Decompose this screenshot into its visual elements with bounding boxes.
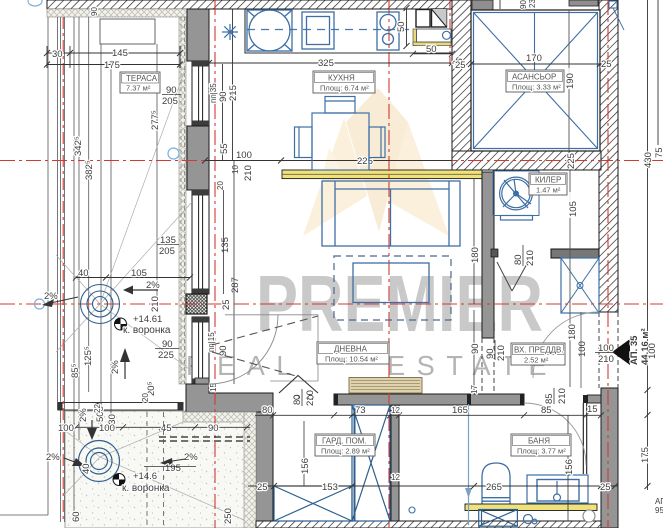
svg-text:90: 90 [519, 0, 528, 9]
svg-text:90: 90 [162, 339, 173, 350]
svg-text:430: 430 [643, 152, 654, 168]
svg-text:210: 210 [598, 354, 614, 365]
svg-text:2%: 2% [184, 452, 198, 463]
svg-text:25: 25 [600, 482, 611, 493]
svg-text:60: 60 [71, 511, 82, 522]
svg-text:15: 15 [587, 404, 598, 415]
svg-text:25: 25 [601, 59, 612, 70]
svg-text:105: 105 [568, 201, 579, 217]
svg-text:2%: 2% [44, 291, 58, 302]
svg-text:180: 180 [470, 247, 481, 263]
svg-text:210: 210 [243, 165, 254, 181]
svg-text:20: 20 [216, 181, 225, 190]
svg-text:2.52 м²: 2.52 м² [524, 356, 549, 365]
svg-text:180: 180 [567, 324, 578, 340]
svg-text:175: 175 [104, 60, 120, 71]
svg-text:100: 100 [99, 423, 115, 434]
svg-text:10: 10 [231, 165, 240, 174]
svg-text:Площ: 3.33 м²: Площ: 3.33 м² [512, 83, 561, 92]
svg-text:ДНЕВНА: ДНЕВНА [334, 345, 368, 354]
svg-text:Площ: 10.54 м²: Площ: 10.54 м² [325, 355, 378, 364]
svg-text:325: 325 [318, 58, 334, 69]
svg-text:БАНЯ: БАНЯ [528, 437, 550, 446]
svg-text:165: 165 [452, 405, 468, 416]
svg-text:73: 73 [355, 405, 366, 416]
svg-text:195: 195 [165, 463, 181, 474]
svg-text:205: 205 [159, 246, 175, 257]
svg-text:170: 170 [526, 53, 542, 64]
svg-text:85: 85 [544, 393, 555, 404]
svg-text:АСАНСЬОР: АСАНСЬОР [512, 73, 556, 82]
svg-text:205: 205 [162, 96, 178, 107]
svg-text:135: 135 [220, 237, 231, 253]
svg-text:ТЕРАСА: ТЕРАСА [126, 74, 158, 83]
svg-text:17: 17 [470, 385, 479, 394]
svg-text:пп|35: пп|35 [209, 83, 218, 103]
svg-text:Площ: 3.77 м²: Площ: 3.77 м² [517, 447, 566, 456]
svg-text:2%: 2% [146, 280, 160, 291]
svg-text:+14.6: +14.6 [133, 471, 157, 482]
svg-text:25: 25 [455, 60, 466, 71]
svg-text:КИЛЕР: КИЛЕР [535, 176, 561, 185]
svg-text:287: 287 [230, 277, 241, 293]
svg-text:135: 135 [160, 235, 176, 246]
svg-text:265: 265 [486, 482, 502, 493]
svg-text:225: 225 [158, 350, 174, 361]
svg-text:22: 22 [93, 404, 102, 413]
svg-text:156: 156 [564, 459, 575, 475]
svg-text:2%: 2% [78, 408, 89, 422]
svg-text:50: 50 [426, 44, 437, 55]
svg-text:235: 235 [528, 0, 537, 8]
svg-text:100: 100 [58, 423, 74, 434]
svg-text:190: 190 [565, 73, 576, 89]
svg-text:145: 145 [112, 48, 128, 59]
svg-text:50: 50 [396, 21, 407, 32]
svg-text:100: 100 [236, 150, 252, 161]
svg-text:153: 153 [322, 482, 338, 493]
svg-text:277⁵: 277⁵ [150, 110, 161, 130]
svg-text:90: 90 [470, 343, 481, 354]
svg-text:90: 90 [90, 7, 99, 16]
svg-text:80: 80 [513, 254, 524, 265]
svg-text:2%: 2% [110, 360, 121, 374]
svg-text:к. воронка: к. воронка [122, 483, 170, 494]
svg-text:30: 30 [52, 49, 63, 60]
svg-text:12: 12 [391, 406, 400, 415]
svg-text:85: 85 [541, 405, 552, 416]
svg-text:+14.61: +14.61 [133, 314, 162, 325]
svg-text:100: 100 [577, 341, 588, 357]
svg-text:90: 90 [208, 423, 219, 434]
svg-text:90: 90 [166, 85, 177, 96]
svg-text:90: 90 [485, 348, 496, 359]
svg-text:382⁵: 382⁵ [84, 160, 95, 180]
svg-text:125⁵: 125⁵ [83, 346, 94, 366]
svg-text:100: 100 [647, 343, 658, 359]
svg-text:ГАРД. ПОМ.: ГАРД. ПОМ. [322, 437, 367, 446]
svg-text:90: 90 [218, 91, 229, 102]
svg-text:1.47 м²: 1.47 м² [536, 186, 561, 195]
svg-text:105: 105 [131, 268, 147, 279]
svg-text:45: 45 [161, 423, 172, 434]
svg-text:215: 215 [228, 85, 239, 101]
svg-text:12: 12 [391, 473, 400, 482]
svg-text:210: 210 [150, 296, 161, 312]
svg-text:210: 210 [557, 388, 568, 404]
svg-text:175: 175 [640, 447, 651, 463]
svg-text:95: 95 [655, 506, 663, 515]
svg-text:7.37 м²: 7.37 м² [126, 84, 151, 93]
svg-text:2%: 2% [46, 452, 60, 463]
svg-text:210: 210 [496, 345, 507, 361]
svg-text:Площ: 2.89 м²: Площ: 2.89 м² [321, 447, 370, 456]
svg-text:25: 25 [221, 299, 232, 310]
svg-text:75: 75 [654, 147, 663, 158]
svg-text:20: 20 [141, 393, 150, 402]
svg-text:342⁵: 342⁵ [73, 136, 84, 156]
svg-text:40: 40 [81, 463, 92, 474]
svg-text:ВХ. ПРЕДДВ.: ВХ. ПРЕДДВ. [514, 346, 564, 355]
svg-text:КУХНЯ: КУХНЯ [328, 74, 355, 83]
svg-text:85⁵: 85⁵ [70, 363, 81, 378]
svg-text:250: 250 [223, 508, 234, 524]
svg-text:156: 156 [300, 458, 311, 474]
svg-text:25: 25 [257, 482, 268, 493]
svg-text:55: 55 [219, 143, 230, 154]
svg-text:Площ: 6.74 м²: Площ: 6.74 м² [320, 84, 369, 93]
svg-text:пп|15: пп|15 [207, 332, 216, 352]
svg-text:40: 40 [78, 268, 89, 279]
svg-text:АП. 35: АП. 35 [629, 335, 640, 365]
svg-text:225: 225 [566, 153, 577, 169]
svg-text:210: 210 [525, 250, 536, 266]
svg-text:80: 80 [262, 405, 273, 416]
svg-text:90: 90 [218, 345, 229, 356]
svg-text:АП: АП [655, 497, 663, 506]
svg-text:к. воронка: к. воронка [123, 325, 171, 336]
